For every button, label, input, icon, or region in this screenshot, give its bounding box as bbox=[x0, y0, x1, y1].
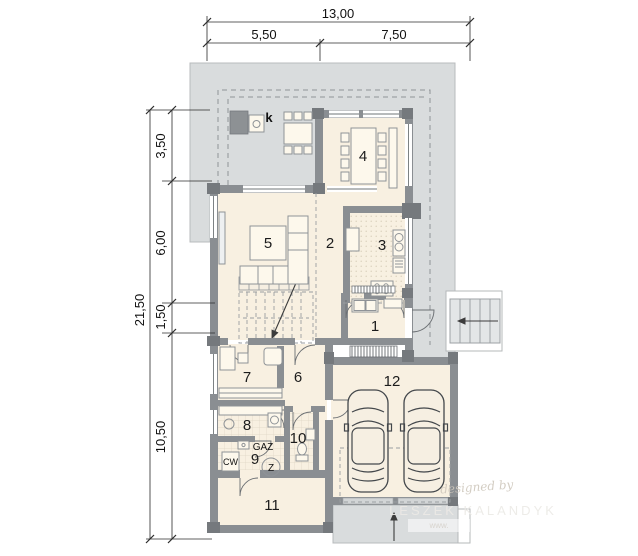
wall-garage-top bbox=[332, 357, 458, 365]
room-number-5: 5 bbox=[264, 235, 272, 252]
dim-width-total: 13,00 bbox=[322, 6, 355, 21]
armchair bbox=[264, 348, 282, 365]
washing-machine bbox=[268, 413, 281, 427]
label-z: Z bbox=[268, 463, 274, 474]
dishwasher bbox=[393, 258, 405, 273]
wall-kitchen-left bbox=[343, 206, 350, 303]
room-number-8: 8 bbox=[243, 417, 251, 434]
floor-plan-page: 1 2 3 4 5 6 7 8 9 10 11 12 k GAZ CW Z 13… bbox=[0, 0, 638, 556]
wall-dining-left bbox=[315, 110, 323, 192]
dim-width-left: 5,50 bbox=[251, 27, 276, 42]
dining-sideboard bbox=[389, 128, 397, 188]
car-2 bbox=[401, 390, 448, 492]
wall-kitchen-top bbox=[343, 206, 405, 213]
room-number-11: 11 bbox=[264, 497, 280, 514]
terrace-table bbox=[284, 123, 312, 144]
wc-sink bbox=[306, 429, 315, 440]
desk-chair bbox=[238, 353, 248, 363]
tv-cabinet bbox=[219, 212, 225, 264]
room-number-4: 4 bbox=[359, 148, 367, 165]
wall-bottom-left bbox=[210, 525, 332, 533]
entry-shelf bbox=[384, 299, 402, 308]
radiator bbox=[352, 286, 395, 293]
car-1 bbox=[345, 390, 392, 492]
gas-meter bbox=[238, 441, 249, 449]
desk bbox=[220, 347, 235, 370]
room-number-3: 3 bbox=[378, 237, 386, 254]
dim-height-c: 1,50 bbox=[153, 304, 168, 329]
watermark-author: LESZEK KALANDYK bbox=[389, 503, 557, 518]
dim-height-total: 21,50 bbox=[132, 294, 147, 327]
exterior-entrance-steps bbox=[446, 291, 502, 351]
room-number-10: 10 bbox=[290, 430, 307, 447]
room-number-6: 6 bbox=[294, 369, 302, 386]
label-k: k bbox=[265, 110, 273, 125]
dim-height-b: 6,00 bbox=[153, 230, 168, 255]
front-door-opening bbox=[405, 308, 412, 338]
dim-height-a: 3,50 bbox=[153, 133, 168, 158]
watermark-url: www. bbox=[428, 521, 448, 530]
toilet-tank bbox=[296, 455, 308, 461]
wall-wc-right bbox=[313, 412, 319, 470]
fridge bbox=[346, 228, 359, 251]
wall-office-laundry bbox=[210, 400, 285, 406]
room-number-9: 9 bbox=[251, 451, 259, 468]
dimension-lines-top: 13,00 5,50 7,50 bbox=[203, 6, 474, 61]
floor-plan-drawing: 1 2 3 4 5 6 7 8 9 10 11 12 k GAZ CW Z 13… bbox=[0, 0, 638, 556]
room-number-12: 12 bbox=[384, 373, 401, 390]
wall-entry-left bbox=[341, 293, 348, 345]
wall-garage-left bbox=[325, 420, 333, 533]
room-number-1: 1 bbox=[371, 318, 379, 335]
room-number-7: 7 bbox=[243, 369, 251, 386]
label-cw: CW bbox=[223, 457, 238, 467]
outdoor-kitchen-unit bbox=[230, 111, 248, 134]
garage-door-1 bbox=[343, 498, 393, 504]
dim-width-right: 7,50 bbox=[381, 27, 406, 42]
dim-height-d: 10,50 bbox=[153, 421, 168, 454]
entry-doormat bbox=[350, 346, 397, 357]
label-gaz: GAZ bbox=[253, 442, 274, 453]
grill-unit bbox=[249, 115, 264, 132]
room-number-2: 2 bbox=[326, 235, 334, 252]
